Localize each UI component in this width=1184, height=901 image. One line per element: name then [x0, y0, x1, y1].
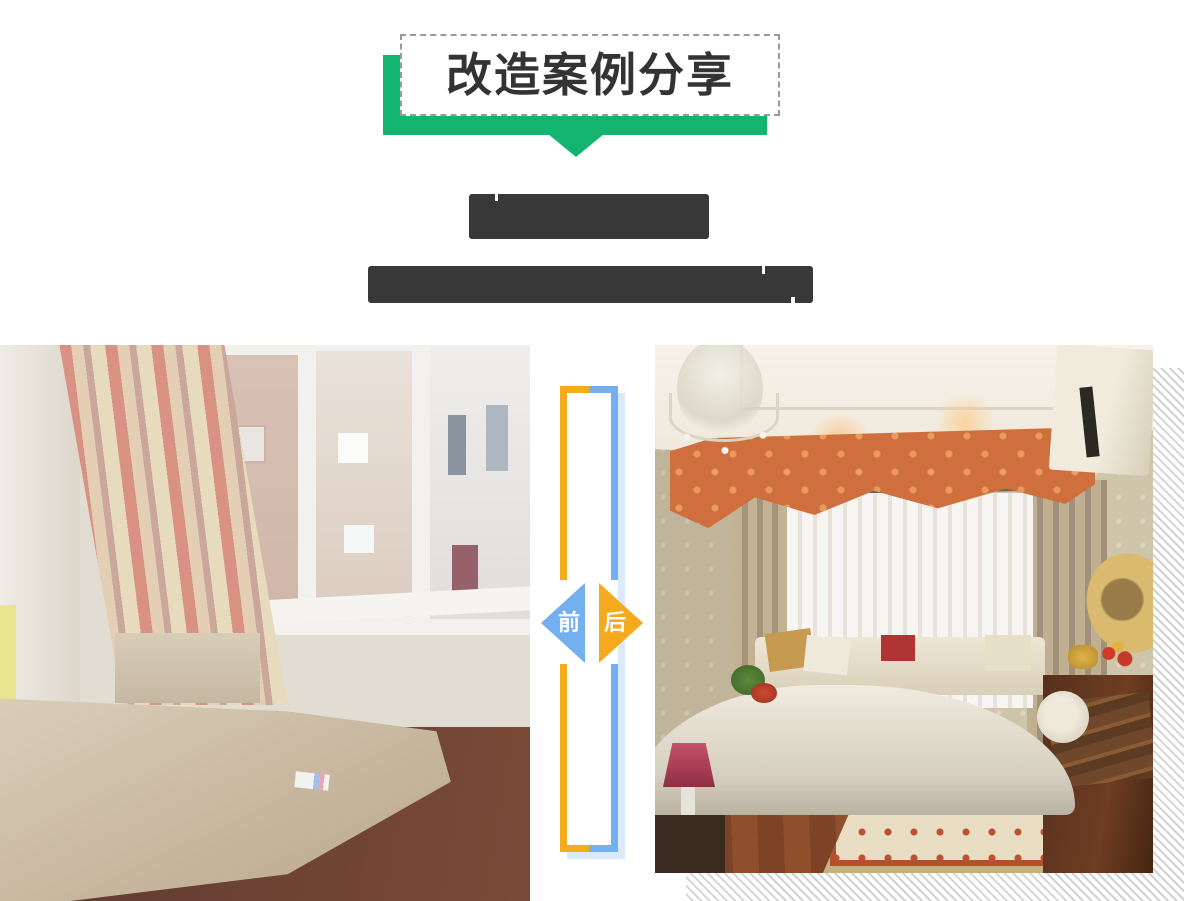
before-badge: 前: [541, 583, 585, 663]
after-ceiling-tray: [740, 345, 1086, 410]
before-nightstand: [115, 633, 260, 703]
after-pillow: [985, 635, 1031, 671]
after-air-conditioner: [1049, 345, 1153, 476]
after-side-table: [655, 815, 725, 873]
before-neighbor-window: [486, 405, 508, 471]
before-photo: [0, 345, 530, 901]
chandelier-crystals: [675, 365, 775, 455]
renovation-case-page: 改造案例分享: [0, 0, 1184, 901]
after-red-box: [881, 635, 915, 661]
after-bouquet: [751, 683, 777, 703]
after-yellow-flowers: [1068, 645, 1098, 669]
before-mattress-label: [294, 771, 329, 790]
after-pillow: [803, 635, 851, 675]
after-bed-scroll: [1037, 691, 1089, 743]
section-title-box: 改造案例分享: [400, 34, 780, 116]
divider-frame-left-lower: [560, 664, 567, 852]
green-ribbon-horizontal: [383, 113, 767, 135]
before-neighbor-window: [448, 415, 466, 475]
divider-frame-right-lower: [611, 664, 618, 852]
before-window-pane: [316, 351, 412, 617]
case-title-redacted: [469, 194, 709, 239]
before-neighbor-window: [452, 545, 478, 591]
after-badge-label: 后: [604, 612, 626, 634]
before-neighbor-window: [344, 525, 374, 553]
divider-frame-left-upper: [560, 386, 567, 580]
before-window-pane: [430, 347, 530, 619]
divider-shadow-bottom: [567, 852, 625, 859]
after-red-flowers: [1095, 639, 1141, 675]
green-ribbon-pointer: [548, 134, 604, 157]
section-title: 改造案例分享: [446, 52, 734, 98]
before-neighbor-window: [338, 433, 368, 463]
before-badge-label: 前: [558, 612, 580, 634]
divider-frame-right-upper: [611, 386, 618, 580]
after-photo: [655, 345, 1153, 873]
divider-frame-top: [560, 386, 618, 393]
case-subtitle-redacted: [368, 266, 813, 303]
divider-frame-bottom: [560, 845, 618, 852]
